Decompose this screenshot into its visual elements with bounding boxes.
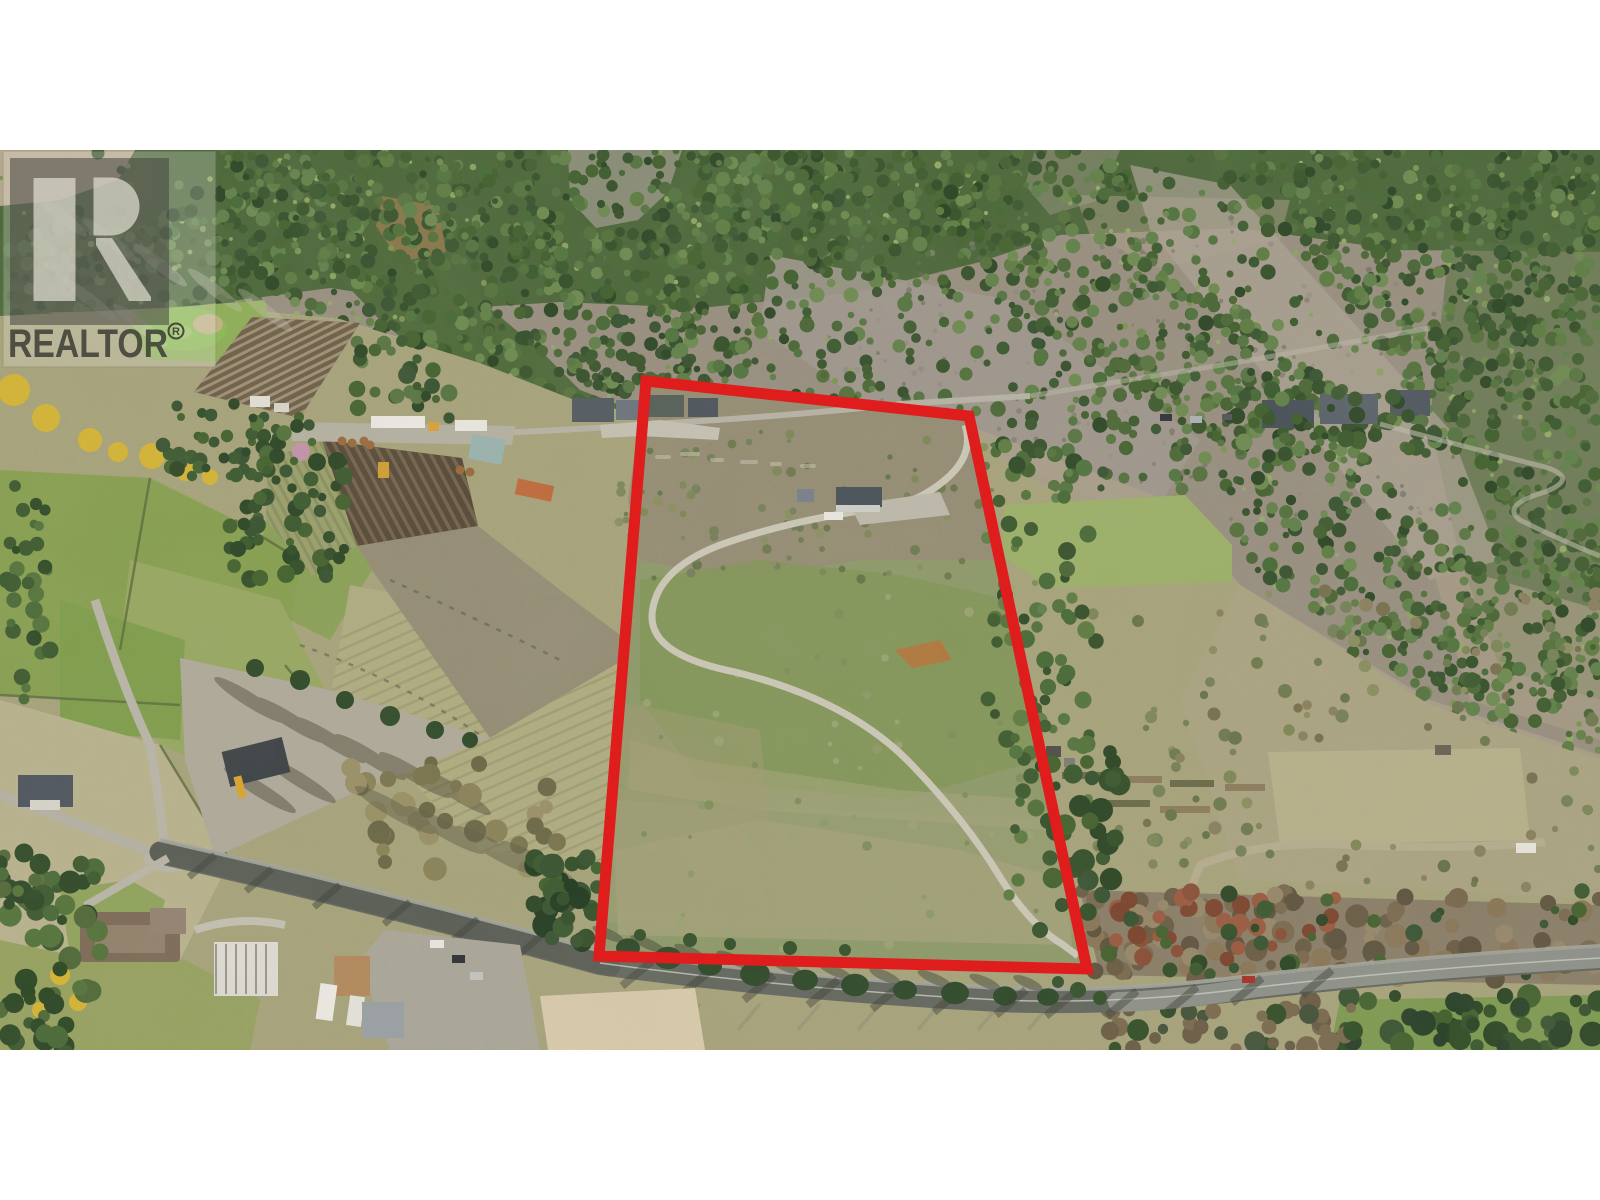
svg-text:REALTOR: REALTOR bbox=[8, 322, 168, 366]
svg-text:R: R bbox=[172, 326, 180, 338]
